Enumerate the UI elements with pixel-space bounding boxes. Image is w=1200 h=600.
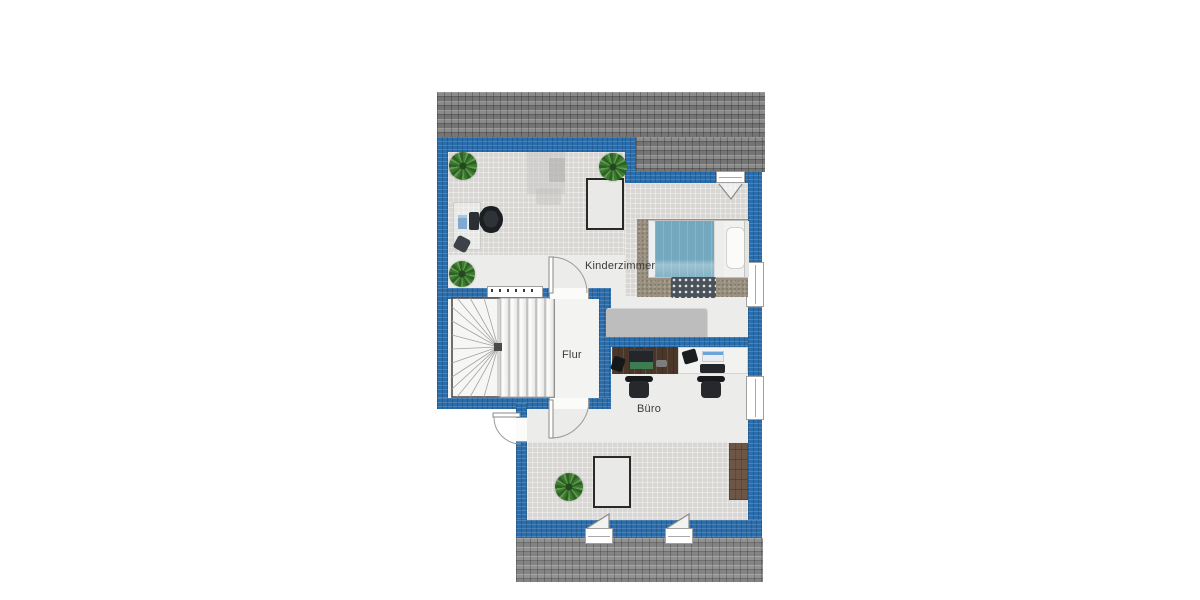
chair-seat: [701, 381, 721, 398]
window-glazing-line: [755, 265, 756, 304]
roof-top: [437, 92, 765, 137]
wall-flur-east: [599, 288, 611, 409]
top-window: [716, 171, 745, 183]
dormer-window-2-flap-icon: [665, 512, 693, 529]
room-label-flur: Flur: [562, 349, 582, 361]
buero-monitor: [700, 364, 725, 373]
bed-headboard: [744, 221, 749, 277]
staircase: [451, 297, 555, 398]
bed-sheet: [714, 221, 724, 277]
desk-accessory: [656, 360, 667, 367]
stair-window-ticks: [491, 289, 539, 292]
roof-right: [636, 137, 765, 172]
top-window-flap-icon: [716, 183, 745, 201]
green-folder: [630, 362, 653, 369]
kinderzimmer-office-chair: [478, 204, 505, 235]
bed: [648, 220, 748, 278]
roof-bottom: [516, 538, 763, 582]
flur-door: [548, 398, 593, 442]
plant-2: [599, 153, 627, 181]
bed-blanket: [655, 221, 714, 277]
roof-window-buero: [593, 456, 631, 508]
dormer-window-2: [665, 528, 693, 544]
plant-4: [555, 473, 583, 501]
exterior-door: [492, 411, 524, 447]
plant-3: [449, 261, 475, 287]
laptop: [629, 349, 653, 362]
room-label-kinderzimmer: Kinderzimmer: [585, 260, 655, 272]
wall-south: [516, 520, 762, 538]
window-glazing-line: [588, 536, 610, 537]
right-window-2: [746, 376, 764, 420]
office-chair-2: [697, 376, 725, 400]
bed-pillow: [726, 227, 745, 269]
plant-1: [449, 152, 477, 180]
papers: [458, 215, 467, 229]
chair-seat: [629, 381, 649, 398]
dormer-window-1-flap-icon: [585, 512, 613, 529]
ghost-chair: [536, 188, 561, 205]
roof-window-kinderzimmer: [586, 178, 624, 230]
dormer-window-1: [585, 528, 613, 544]
window-glazing-line: [755, 379, 756, 417]
wall-north-west: [437, 137, 636, 152]
wardrobe: [606, 308, 708, 337]
ghost-table-return: [549, 158, 565, 182]
wall-buero-north: [599, 337, 750, 347]
sideboard: [729, 443, 748, 500]
wall-east: [748, 171, 762, 538]
room-label-buero: Büro: [637, 403, 661, 415]
doormat: [671, 277, 716, 298]
office-chair-1: [625, 376, 653, 400]
window-glazing-line: [719, 177, 742, 178]
wall-west: [437, 137, 448, 409]
printer: [702, 351, 724, 362]
window-glazing-line: [668, 536, 690, 537]
floor-plan: Kinderzimmer Flur Büro: [0, 0, 1200, 600]
